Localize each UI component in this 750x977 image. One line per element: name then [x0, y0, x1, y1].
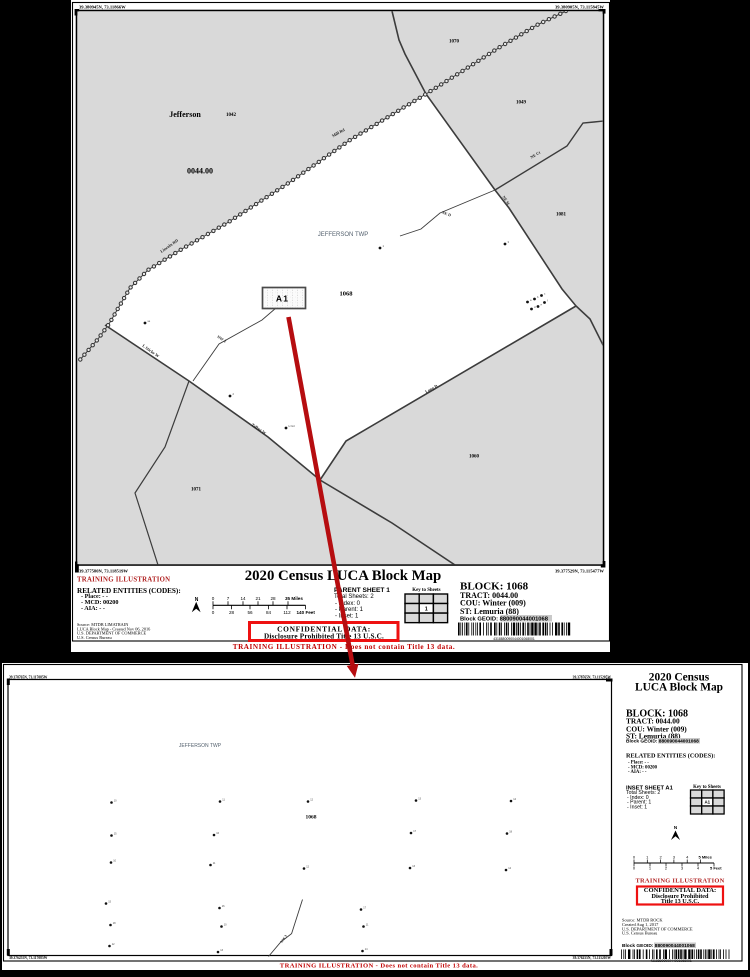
svg-text:Block GEOID: 880090044001068: Block GEOID: 880090044001068 — [460, 617, 549, 623]
svg-text:35 Miles: 35 Miles — [285, 596, 303, 601]
svg-text:Disclosure Prohibited Title 13: Disclosure Prohibited Title 13 U.S.C. — [264, 632, 384, 640]
svg-text:Title 13 U.S.C.: Title 13 U.S.C. — [661, 898, 700, 905]
svg-text:140 Feet: 140 Feet — [297, 610, 316, 615]
svg-text:Key to Sheets: Key to Sheets — [412, 588, 440, 593]
svg-text:JEFFERSON TWP: JEFFERSON TWP — [318, 232, 369, 238]
svg-text:4318880090044001068001: 4318880090044001068001 — [493, 637, 535, 641]
svg-text:U.S. Census Bureau: U.S. Census Bureau — [622, 931, 658, 936]
svg-text:- Inset: 1: - Inset: 1 — [335, 614, 359, 620]
svg-text:1068: 1068 — [306, 815, 317, 821]
svg-text:1068: 1068 — [340, 291, 354, 298]
svg-text:1070: 1070 — [449, 40, 460, 45]
svg-text:A1: A1 — [276, 294, 289, 304]
svg-text:Key to Sheets: Key to Sheets — [693, 785, 721, 790]
svg-text:- AIA: - -: - AIA: - - — [81, 605, 105, 612]
svg-text:84: 84 — [266, 610, 272, 615]
svg-text:1042: 1042 — [226, 113, 237, 118]
svg-text:U.S. Census Bureau: U.S. Census Bureau — [77, 635, 112, 640]
svg-text:TRAINING ILLUSTRATION - Does n: TRAINING ILLUSTRATION - Does not contain… — [233, 643, 456, 651]
svg-text:1081: 1081 — [556, 213, 567, 218]
svg-text:Block GEOID: 880090044001068: Block GEOID: 880090044001068 — [626, 739, 699, 745]
svg-text:1: 1 — [425, 607, 428, 613]
svg-text:0: 0 — [212, 596, 215, 601]
svg-text:- Inset: 1: - Inset: 1 — [627, 804, 647, 810]
svg-text:7: 7 — [227, 596, 230, 601]
svg-text:21: 21 — [255, 596, 261, 601]
svg-text:Block GEOID: 880090044001068: Block GEOID: 880090044001068 — [622, 943, 695, 949]
svg-text:0044.00: 0044.00 — [187, 167, 213, 176]
svg-text:LUCA Block Map: LUCA Block Map — [635, 682, 723, 694]
svg-text:JEFFERSON TWP: JEFFERSON TWP — [179, 743, 222, 749]
svg-text:- Parent: 1: - Parent: 1 — [335, 607, 364, 613]
svg-text:1071: 1071 — [191, 488, 202, 493]
svg-text:2020 Census LUCA Block Map: 2020 Census LUCA Block Map — [245, 568, 442, 584]
svg-text:H Gd: H Gd — [289, 424, 296, 428]
svg-text:ST: Lemuria (88): ST: Lemuria (88) — [460, 607, 519, 616]
svg-text:39.377580N, 73.118519W: 39.377580N, 73.118519W — [79, 569, 128, 574]
svg-text:Jefferson: Jefferson — [169, 110, 201, 119]
svg-text:5 Feet: 5 Feet — [710, 866, 722, 871]
svg-text:- AIA: - -: - AIA: - - — [628, 770, 647, 775]
svg-text:28: 28 — [229, 610, 235, 615]
svg-text:39.377529N, 73.115477W: 39.377529N, 73.115477W — [555, 569, 604, 574]
svg-text:0: 0 — [212, 610, 215, 615]
svg-text:RELATED ENTITIES (CODES):: RELATED ENTITIES (CODES): — [626, 753, 715, 760]
svg-text:28: 28 — [270, 596, 276, 601]
svg-text:112: 112 — [283, 610, 291, 615]
svg-text:39.376255N, 73.115205W: 39.376255N, 73.115205W — [573, 956, 612, 960]
svg-text:39.380905N, 73.115845W: 39.380905N, 73.115845W — [555, 5, 604, 10]
svg-text:TRAINING ILLUSTRATION: TRAINING ILLUSTRATION — [635, 877, 724, 884]
svg-text:TRAINING ILLUSTRATION: TRAINING ILLUSTRATION — [77, 576, 170, 583]
svg-text:56: 56 — [247, 610, 253, 615]
svg-text:TRAINING ILLUSTRATION - Does n: TRAINING ILLUSTRATION - Does not contain… — [280, 963, 478, 970]
svg-text:39.376255N, 73.117085W: 39.376255N, 73.117085W — [9, 956, 48, 960]
svg-text:39.380945N, 73.11866W: 39.380945N, 73.11866W — [79, 5, 126, 10]
svg-text:1060: 1060 — [469, 455, 480, 460]
svg-text:4318880090044001068001: 4318880090044001068001 — [650, 959, 692, 963]
svg-text:N: N — [195, 597, 199, 603]
svg-text:PARENT SHEET 1: PARENT SHEET 1 — [334, 587, 390, 594]
svg-text:A1: A1 — [704, 800, 710, 805]
svg-text:1049: 1049 — [516, 101, 527, 106]
svg-text:5 Miles: 5 Miles — [699, 855, 713, 860]
svg-text:14: 14 — [240, 596, 246, 601]
